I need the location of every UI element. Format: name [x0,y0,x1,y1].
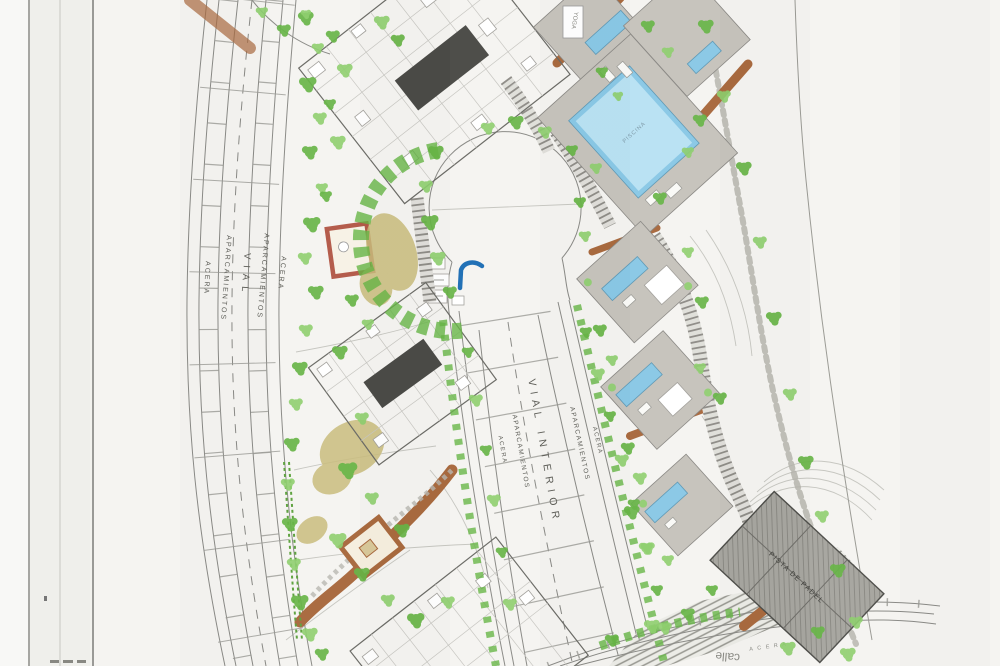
villa-plot-c [577,221,698,342]
site-plan-page: ACERA APARCAMIENTOS VIAL APARCAMIENTOS A… [0,0,1000,666]
left-road-parking-ticks-inner [257,0,289,666]
tree [337,64,353,78]
tree [496,547,508,558]
tree [736,162,752,176]
central-road-aparcamientos-right-label: APARCAMIENTOS [568,406,590,481]
central-road-acera-left-label: ACERA [497,435,508,464]
tree [320,191,332,202]
tree [330,136,346,150]
site-plan-drawing: ACERA APARCAMIENTOS VIAL APARCAMIENTOS A… [0,0,1000,666]
left-road-aparcamientos-outer-label: APARCAMIENTOS [219,235,232,321]
margin-illegible-marks [50,660,86,663]
tree [324,99,336,110]
tree [374,16,390,30]
tree [302,628,318,642]
left-road-aparcamientos-inner-label: APARCAMIENTOS [255,233,269,319]
tree [766,312,782,326]
tree [621,442,635,454]
tree [298,252,312,264]
tree [303,217,321,233]
tree [292,362,308,376]
building-top-partitions [299,0,570,204]
tree [798,456,814,470]
tree [606,355,618,366]
tree [662,555,674,566]
tree [312,43,324,54]
tree [615,454,629,466]
central-road-aparcamientos-left-label: APARCAMIENTOS [510,414,530,489]
tree [284,438,300,452]
left-road-acera-inner-label: ACERA [276,256,287,291]
left-road-parking-ticks-outer [209,0,244,666]
tree [313,112,327,124]
tree [753,236,767,248]
building-top [299,0,570,204]
tree [633,472,647,484]
tree [365,492,379,504]
tree [574,197,586,208]
tree [641,542,655,554]
tree [783,388,797,400]
building-top-core [395,25,489,110]
villa-plot-e [631,454,733,556]
tree [326,30,340,42]
tree [381,594,395,606]
roundabout-circle [429,132,581,262]
tree [487,494,501,506]
tree [604,411,616,422]
tree [579,231,591,242]
tree [624,506,640,520]
tree [462,347,474,358]
tree [695,296,709,308]
tree [508,116,524,130]
roundabout [428,132,581,312]
tree [282,518,298,532]
building-top-outline [299,0,570,204]
tree [480,445,492,456]
hydrant-blue-mark [460,263,482,288]
tree [302,146,318,160]
tree [287,558,301,570]
tree [593,324,607,336]
lawn-blob-3 [291,510,333,549]
tree [315,648,329,660]
tree [840,648,856,662]
tree [651,585,663,596]
left-road-outer-edge [187,0,225,666]
scan-speck [44,596,47,601]
tree [299,77,317,93]
left-road-center-line [232,0,266,666]
pergola-lower [341,517,402,576]
tree [407,613,425,629]
left-road-acera-outer-label: ACERA [202,261,211,295]
tree [503,598,517,610]
tree [345,294,359,306]
tree [281,478,295,490]
scan-margin [0,0,93,666]
central-road-acera-right [558,302,644,666]
left-road-cross-lines [232,0,266,666]
tree [815,510,829,522]
tree [682,247,694,258]
tree [299,324,313,336]
tree [780,642,796,656]
tree [289,398,303,410]
tree [391,34,405,46]
left-road-acera-line-outer [199,0,236,666]
roundabout-flare-right [562,258,570,300]
tree [277,24,291,36]
building-mid-core [363,339,442,408]
tree [706,585,718,596]
scan-margin-strip [0,0,28,666]
left-road-vial-label: VIAL [238,253,252,298]
roundabout-flare-left [448,262,452,312]
street-name-label: calle [714,649,740,665]
tree [332,346,348,360]
tree [308,286,324,300]
